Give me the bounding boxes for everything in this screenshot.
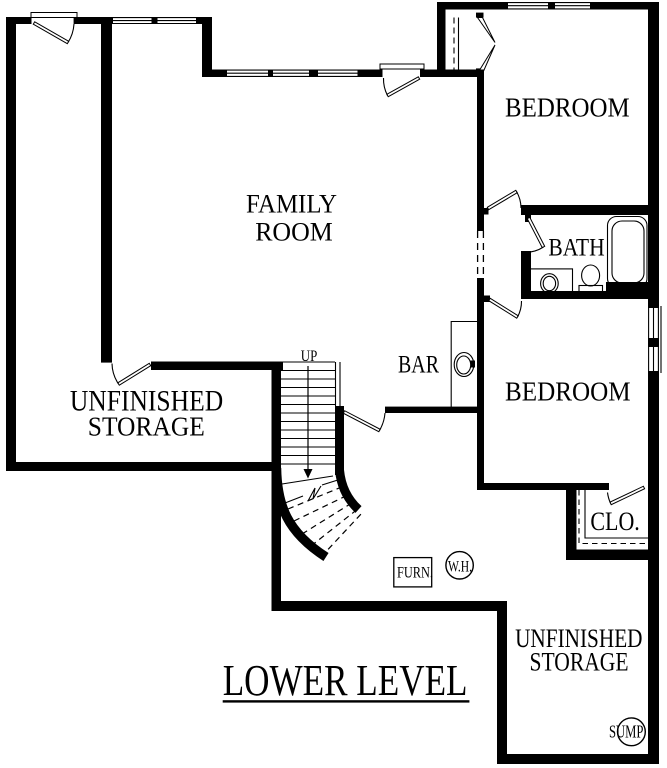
svg-text:CLO.: CLO. — [590, 507, 639, 536]
svg-text:ROOM: ROOM — [255, 218, 333, 247]
svg-text:FURN.: FURN. — [397, 564, 433, 581]
svg-text:STORAGE: STORAGE — [88, 411, 205, 441]
svg-text:FAMILY: FAMILY — [246, 190, 337, 219]
svg-text:BEDROOM: BEDROOM — [505, 377, 631, 407]
svg-text:LOWER LEVEL: LOWER LEVEL — [223, 656, 468, 705]
svg-text:SUMP: SUMP — [609, 722, 644, 742]
svg-text:BEDROOM: BEDROOM — [505, 93, 630, 123]
svg-text:BAR: BAR — [398, 350, 439, 379]
svg-text:BATH: BATH — [548, 233, 604, 262]
svg-text:STORAGE: STORAGE — [530, 648, 629, 677]
svg-text:UP: UP — [301, 348, 318, 365]
svg-text:W.H.: W.H. — [448, 558, 472, 575]
